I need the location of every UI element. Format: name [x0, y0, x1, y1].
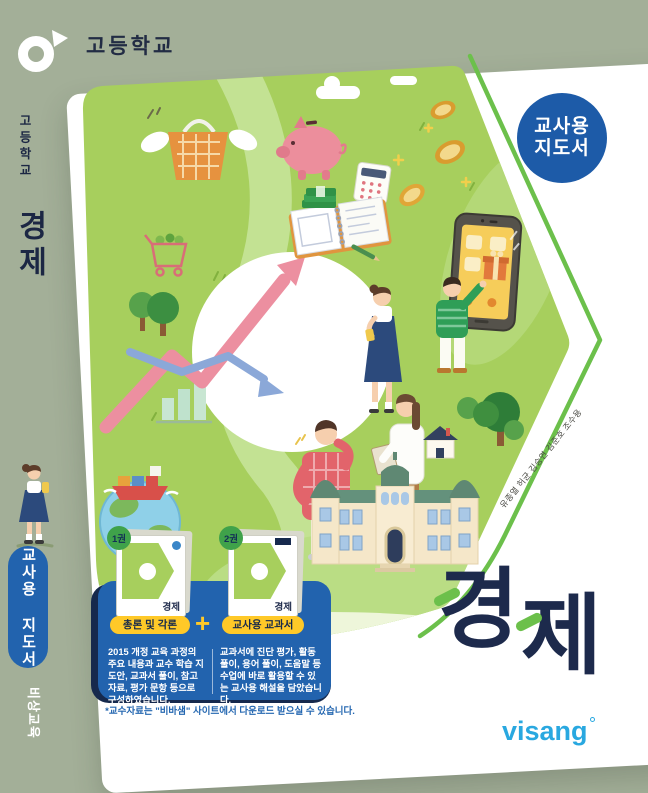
walking-girl-icon: [6, 460, 60, 550]
volume-badge: 2권: [219, 526, 243, 550]
visang-logo-dot-icon: [590, 717, 595, 722]
spine-school-level: 고등학교: [15, 114, 34, 180]
volume-badge: 1권: [107, 526, 131, 550]
cd-icon: [172, 541, 181, 550]
plus-sign: +: [195, 608, 210, 639]
mini-cover-title: 경제: [163, 599, 180, 613]
badge-line-2: 지도서: [534, 138, 589, 160]
book1-label-pill: 총론 및 각론: [110, 616, 190, 634]
mini-cover-circle: [139, 563, 156, 580]
badge-line-1: 교사용: [534, 116, 589, 138]
spine-publisher-name: 비상교육: [25, 687, 44, 747]
visang-text: visang: [502, 716, 588, 746]
guide-tag: [275, 538, 291, 545]
spine-subject-title: 경제: [7, 210, 51, 282]
teacher-guide-badge: 교사용 지도서: [517, 93, 607, 183]
publisher-logo-icon: [12, 24, 78, 82]
mini-cover-circle: [251, 563, 268, 580]
visang-wordmark: visang: [502, 716, 588, 747]
book-volume-1: 경제 1권: [116, 535, 186, 617]
panel-divider: [212, 649, 213, 694]
title-char-2: 제: [521, 592, 602, 680]
book-volume-2: 경제 2권: [228, 535, 298, 617]
title-char-1: 경: [438, 566, 519, 654]
school-level-heading: 고등학교: [86, 30, 175, 60]
mini-cover-title: 경제: [275, 599, 292, 613]
spine-teacher-guide-pill: 교사용 지도서: [8, 546, 48, 668]
spine-teacher-guide-label: 교사용 지도서: [18, 547, 39, 668]
book-cover: { "cover": { "school_level": "고등학교", "su…: [0, 0, 648, 769]
cover-title: 경 제: [430, 556, 645, 706]
book2-description: 교과서에 진단 평가, 활동 풀이, 용어 풀이, 도움말 등 수업에 바로 활…: [220, 646, 323, 706]
book2-label-pill: 교사용 교과서: [222, 616, 304, 634]
book1-description: 2015 개정 교육 과정의 주요 내용과 교수 학습 지도안, 교과서 풀이,…: [108, 646, 205, 706]
